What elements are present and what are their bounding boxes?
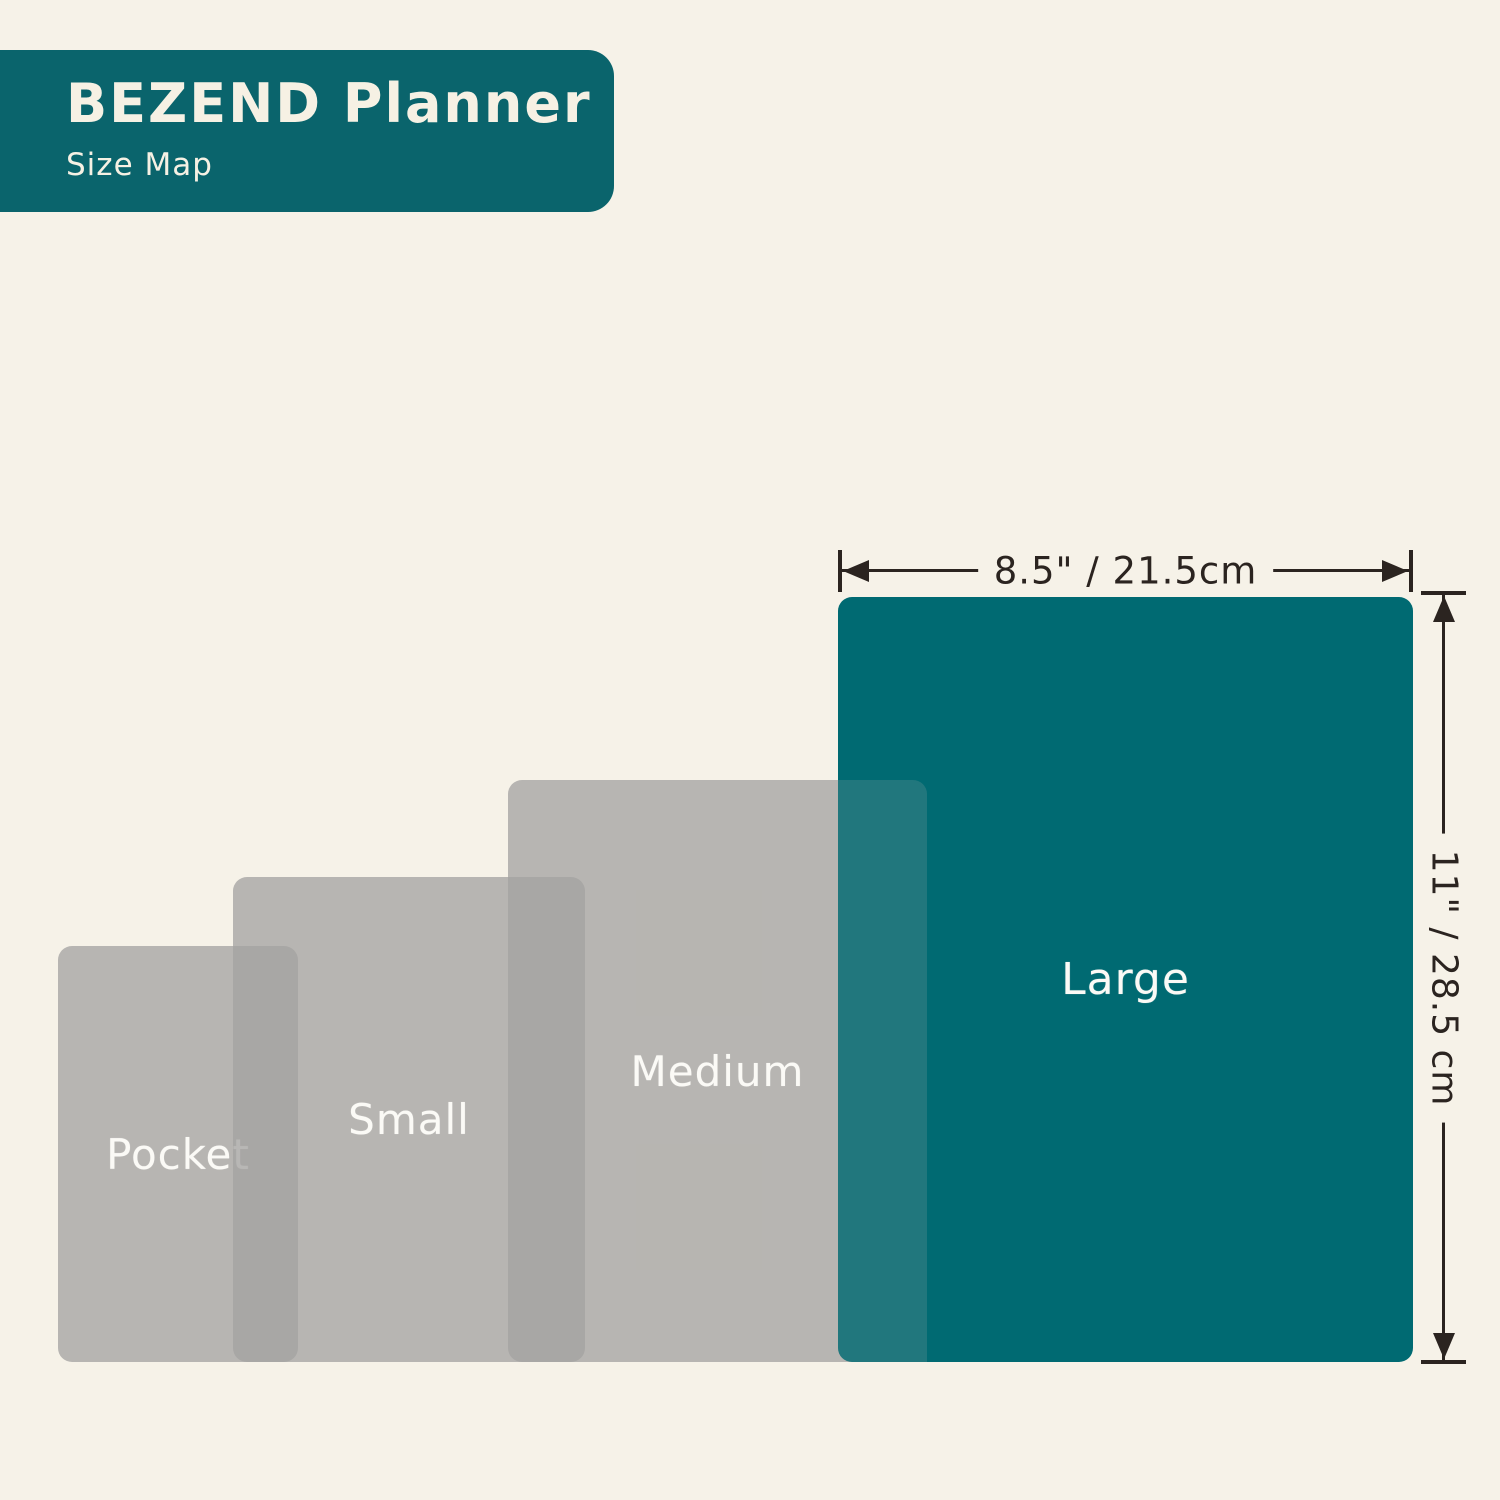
height-top-endbar — [1421, 591, 1466, 595]
page-subtitle: Size Map — [66, 147, 614, 183]
width-dimension-label: 8.5" / 21.5cm — [978, 550, 1274, 593]
medium-large-overlap — [838, 780, 927, 1362]
arrow-down-icon — [1433, 1333, 1455, 1359]
size-map-canvas: BEZEND Planner Size Map Pocket Small Med… — [0, 0, 1500, 1500]
width-left-endbar — [838, 550, 842, 592]
size-label-medium: Medium — [631, 1047, 805, 1096]
arrow-left-icon — [843, 560, 869, 582]
size-label-pocket: Pocket — [106, 1130, 250, 1179]
size-label-small: Small — [348, 1095, 470, 1144]
width-right-endbar — [1409, 550, 1413, 592]
header-badge: BEZEND Planner Size Map — [0, 50, 614, 212]
height-dimension: 11" / 28.5 cm — [1421, 591, 1466, 1364]
arrow-right-icon — [1382, 560, 1408, 582]
height-bottom-endbar — [1421, 1360, 1466, 1364]
width-dimension: 8.5" / 21.5cm — [838, 550, 1413, 592]
brand-title: BEZEND Planner — [66, 74, 614, 133]
height-dimension-label: 11" / 28.5 cm — [1423, 833, 1464, 1122]
size-label-large: Large — [1061, 954, 1190, 1005]
arrow-up-icon — [1433, 596, 1455, 622]
